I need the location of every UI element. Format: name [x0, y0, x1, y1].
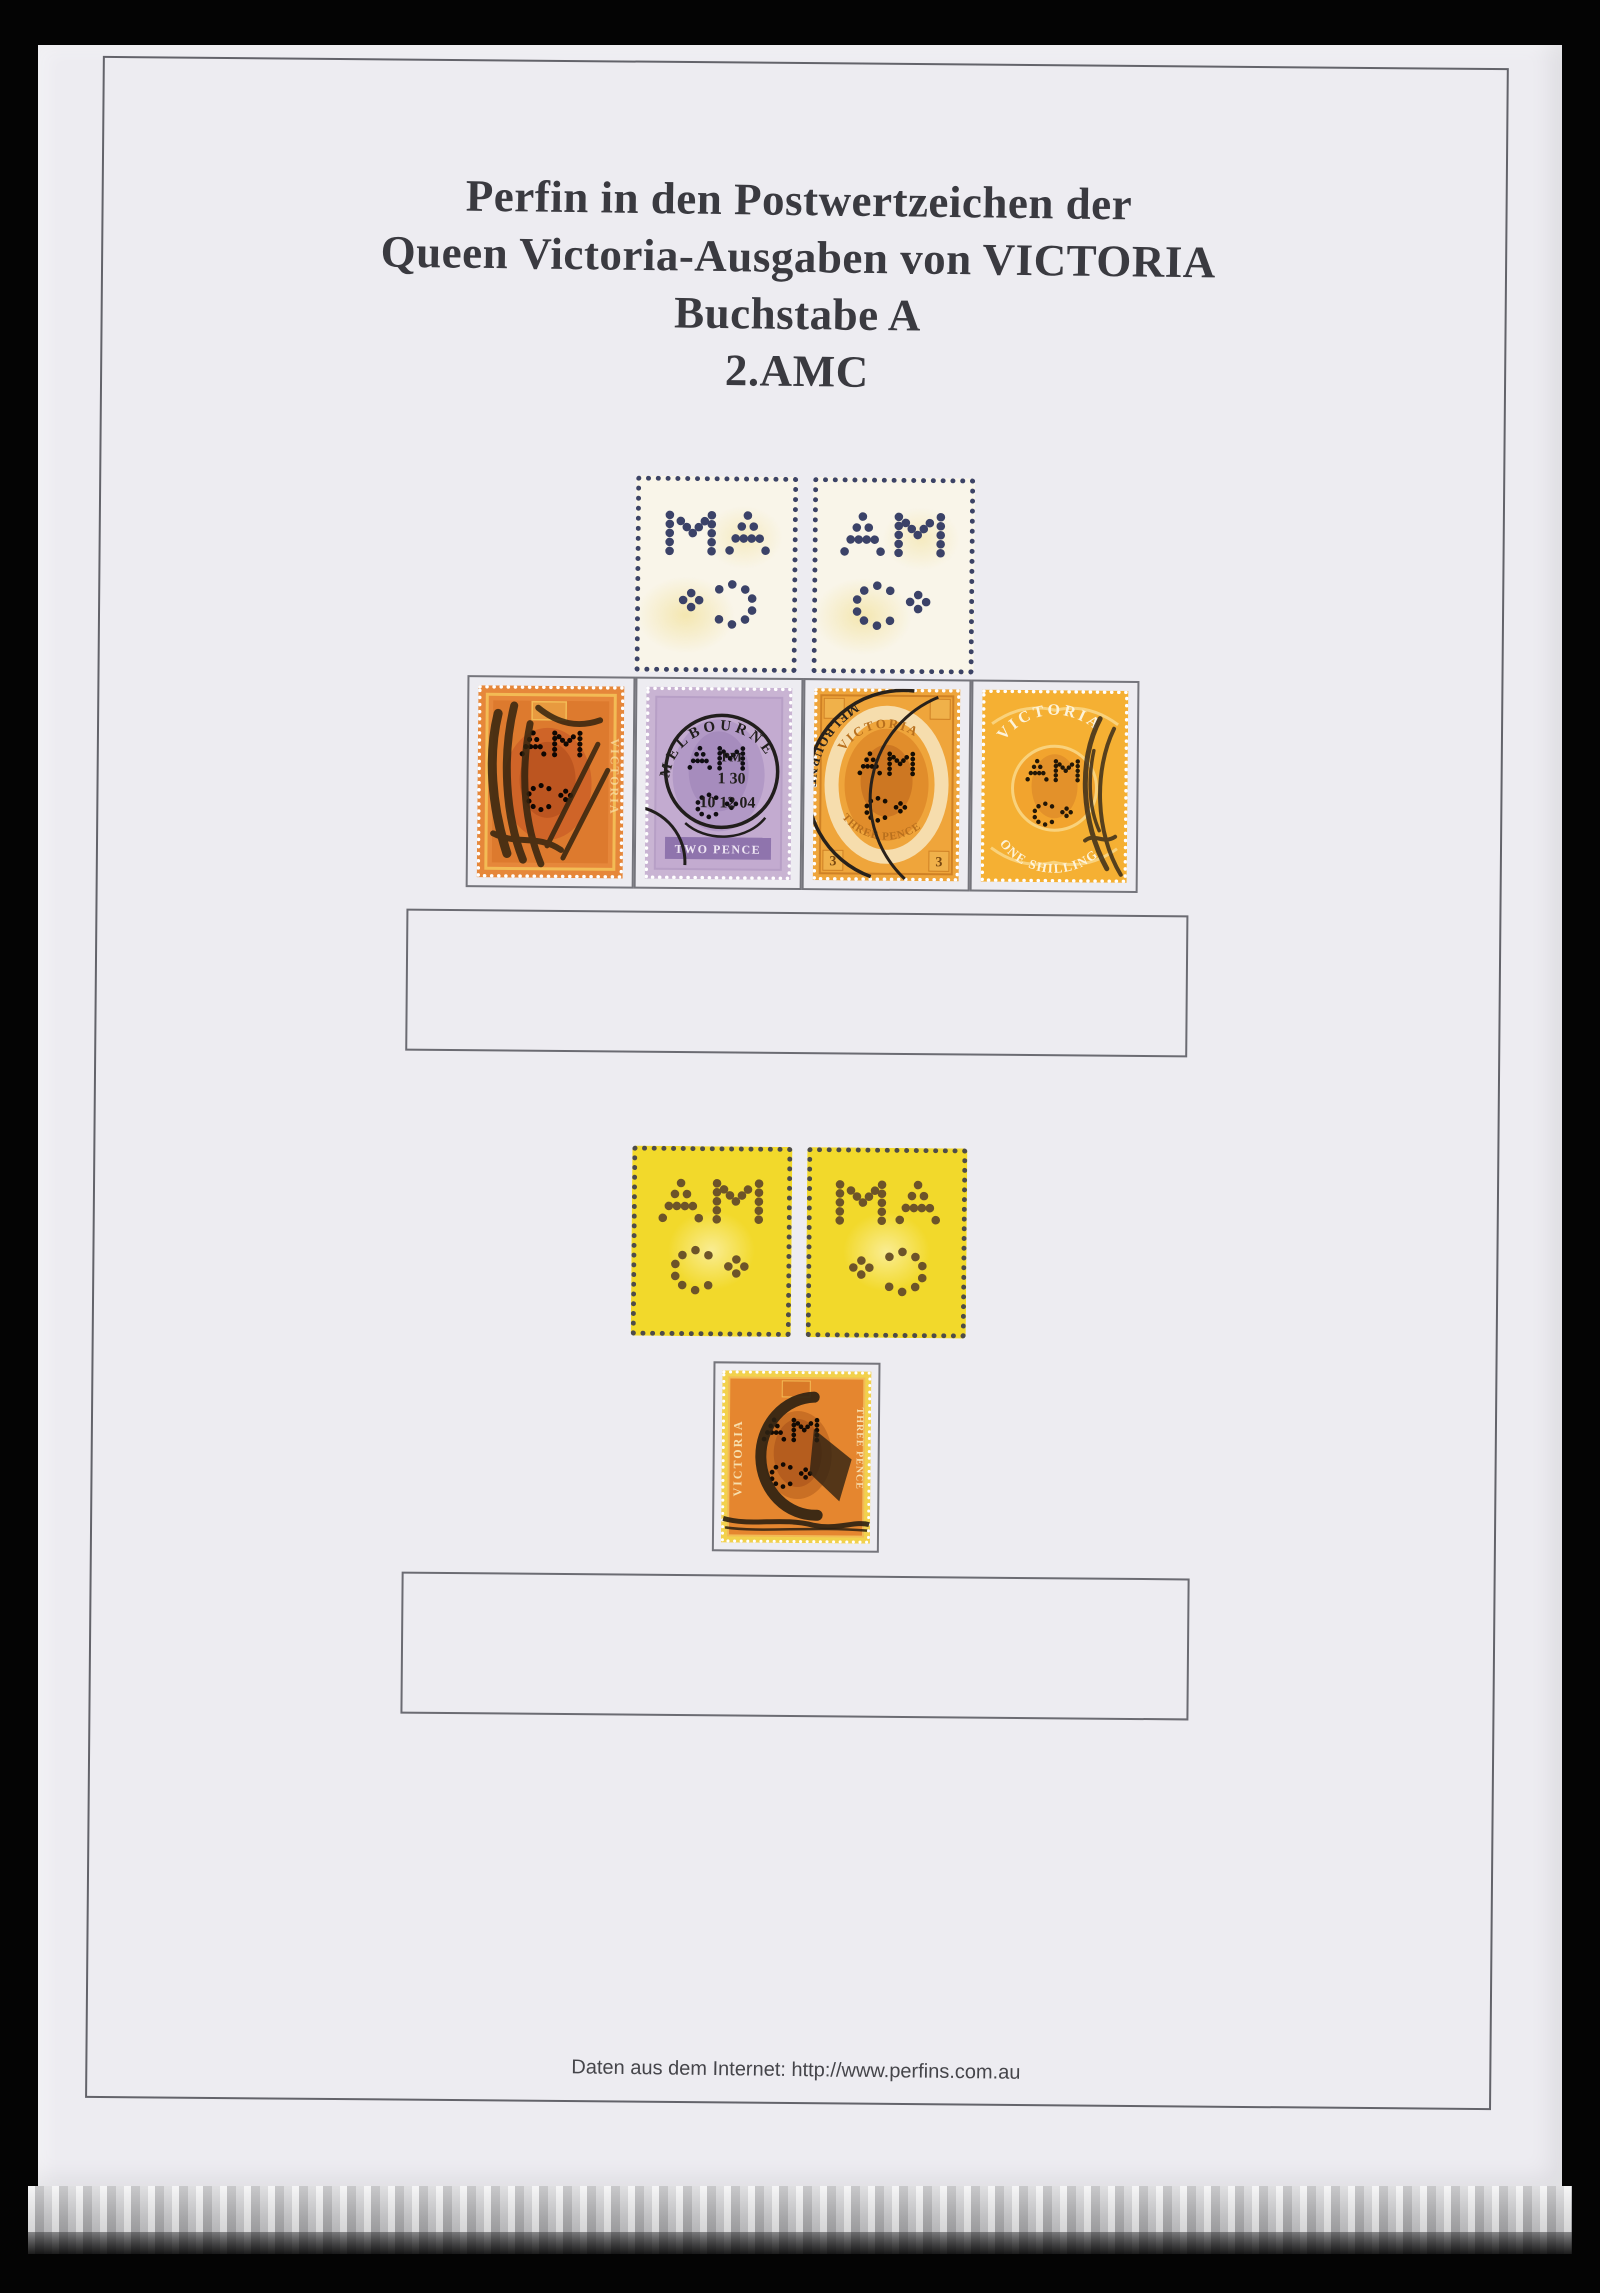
stamp2-time: 1 30: [718, 770, 746, 787]
album-page: Perfin in den Postwertzeichen der Queen …: [38, 45, 1562, 2187]
stamp-mount-4: VICTORIA ONE SHILLING: [970, 680, 1140, 893]
stamp-mount-single: VICTORIA THREE PENCE: [712, 1361, 881, 1552]
description-box-2: [400, 1572, 1189, 1721]
perfin-pattern: [817, 482, 971, 669]
stamp2-value-label: TWO PENCE: [675, 842, 762, 857]
stamp-two-pence-lilac: TWO PENCE MELBOURNE PM 1: [645, 687, 793, 880]
stamp3-numeral-right: 3: [935, 855, 942, 870]
stamp2-date: 10 12 04: [699, 794, 755, 811]
stamp-single-value: THREE PENCE: [853, 1408, 865, 1490]
stamp1-country-label: VICTORIA: [607, 738, 622, 815]
stamp-three-pence-single: VICTORIA THREE PENCE: [721, 1370, 871, 1543]
perfin-pattern-mirrored: [640, 481, 794, 668]
photo-background: Perfin in den Postwertzeichen der Queen …: [0, 0, 1600, 2293]
stamp-mount-2: TWO PENCE MELBOURNE PM 1: [634, 677, 804, 890]
stamp2-pm: PM: [722, 749, 742, 764]
description-box-1: [405, 909, 1188, 1058]
perfin-diagram-stamp-front: [812, 477, 976, 674]
page-title: Perfin in den Postwertzeichen der Queen …: [34, 162, 1561, 410]
stamp-mount-1: VICTORIA: [466, 675, 636, 888]
stamp-halfpenny-orange: VICTORIA: [477, 685, 625, 878]
perfin-diagram-stamp-reverse: [635, 476, 799, 673]
page-content: Perfin in den Postwertzeichen der Queen …: [19, 38, 1562, 2193]
plastic-sleeve-edge: [28, 2186, 1572, 2254]
yellow-perfin-pattern: [636, 1151, 788, 1332]
stamp-one-shilling-orange: VICTORIA ONE SHILLING: [981, 690, 1129, 883]
yellow-perfin-stamp-front: [631, 1146, 793, 1337]
yellow-perfin-pattern-mirrored: [811, 1152, 963, 1333]
stamp-three-pence-orange: 3 3 VICTORIA THREE PENCE: [813, 688, 961, 881]
stamp-single-country: VICTORIA: [730, 1419, 745, 1496]
yellow-perfin-stamp-reverse: [806, 1147, 968, 1338]
stamp-mount-3: 3 3 VICTORIA THREE PENCE: [802, 678, 972, 891]
